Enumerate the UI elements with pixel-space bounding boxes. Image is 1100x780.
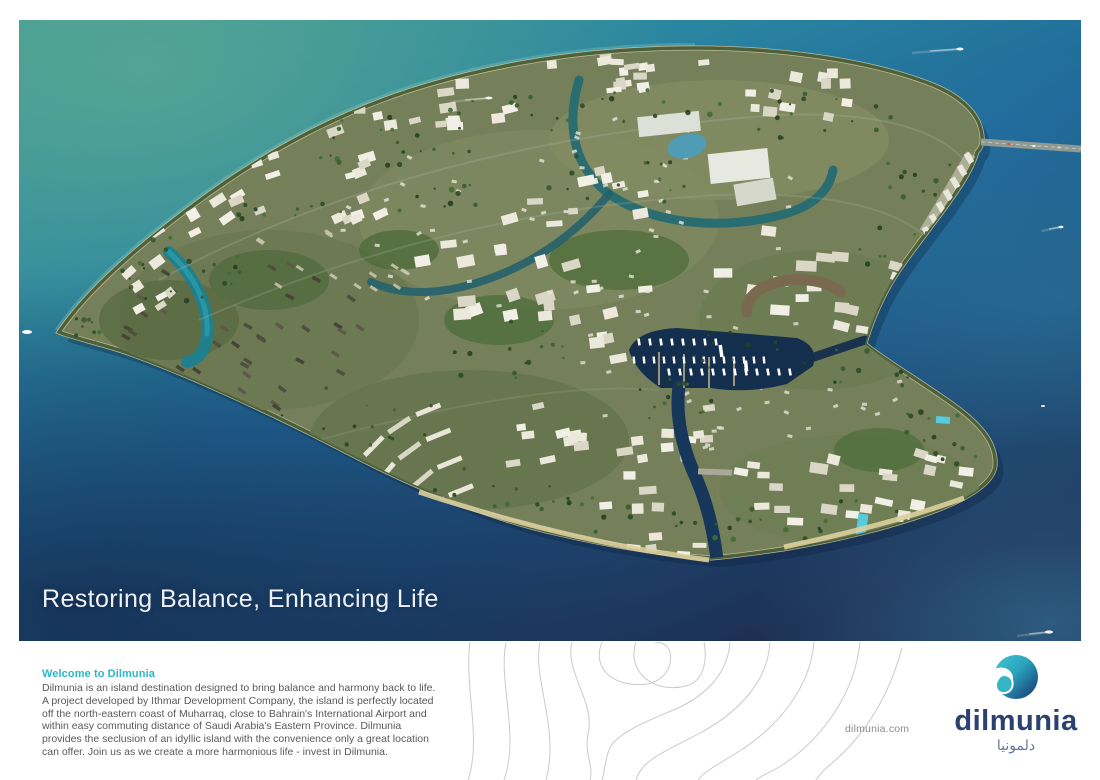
welcome-heading: Welcome to Dilmunia	[42, 668, 155, 680]
website-url[interactable]: dilmunia.com	[845, 723, 909, 735]
about-paragraph: Dilmunia is an island destination design…	[42, 682, 442, 759]
footer: Welcome to Dilmunia Dilmunia is an islan…	[0, 641, 1100, 780]
channel-bridge	[698, 468, 732, 475]
tagline: Restoring Balance, Enhancing Life	[42, 585, 439, 614]
brand-logo: dilmunia دلمونيا	[940, 652, 1092, 753]
island-render-image: Restoring Balance, Enhancing Life	[19, 20, 1081, 641]
contour-pattern	[440, 642, 920, 780]
brand-wordmark: dilmunia	[940, 706, 1092, 736]
island-aerial-scene	[19, 20, 1081, 641]
brand-wordmark-arabic: دلمونيا	[940, 737, 1092, 753]
dilmunia-logo-icon	[989, 652, 1043, 704]
